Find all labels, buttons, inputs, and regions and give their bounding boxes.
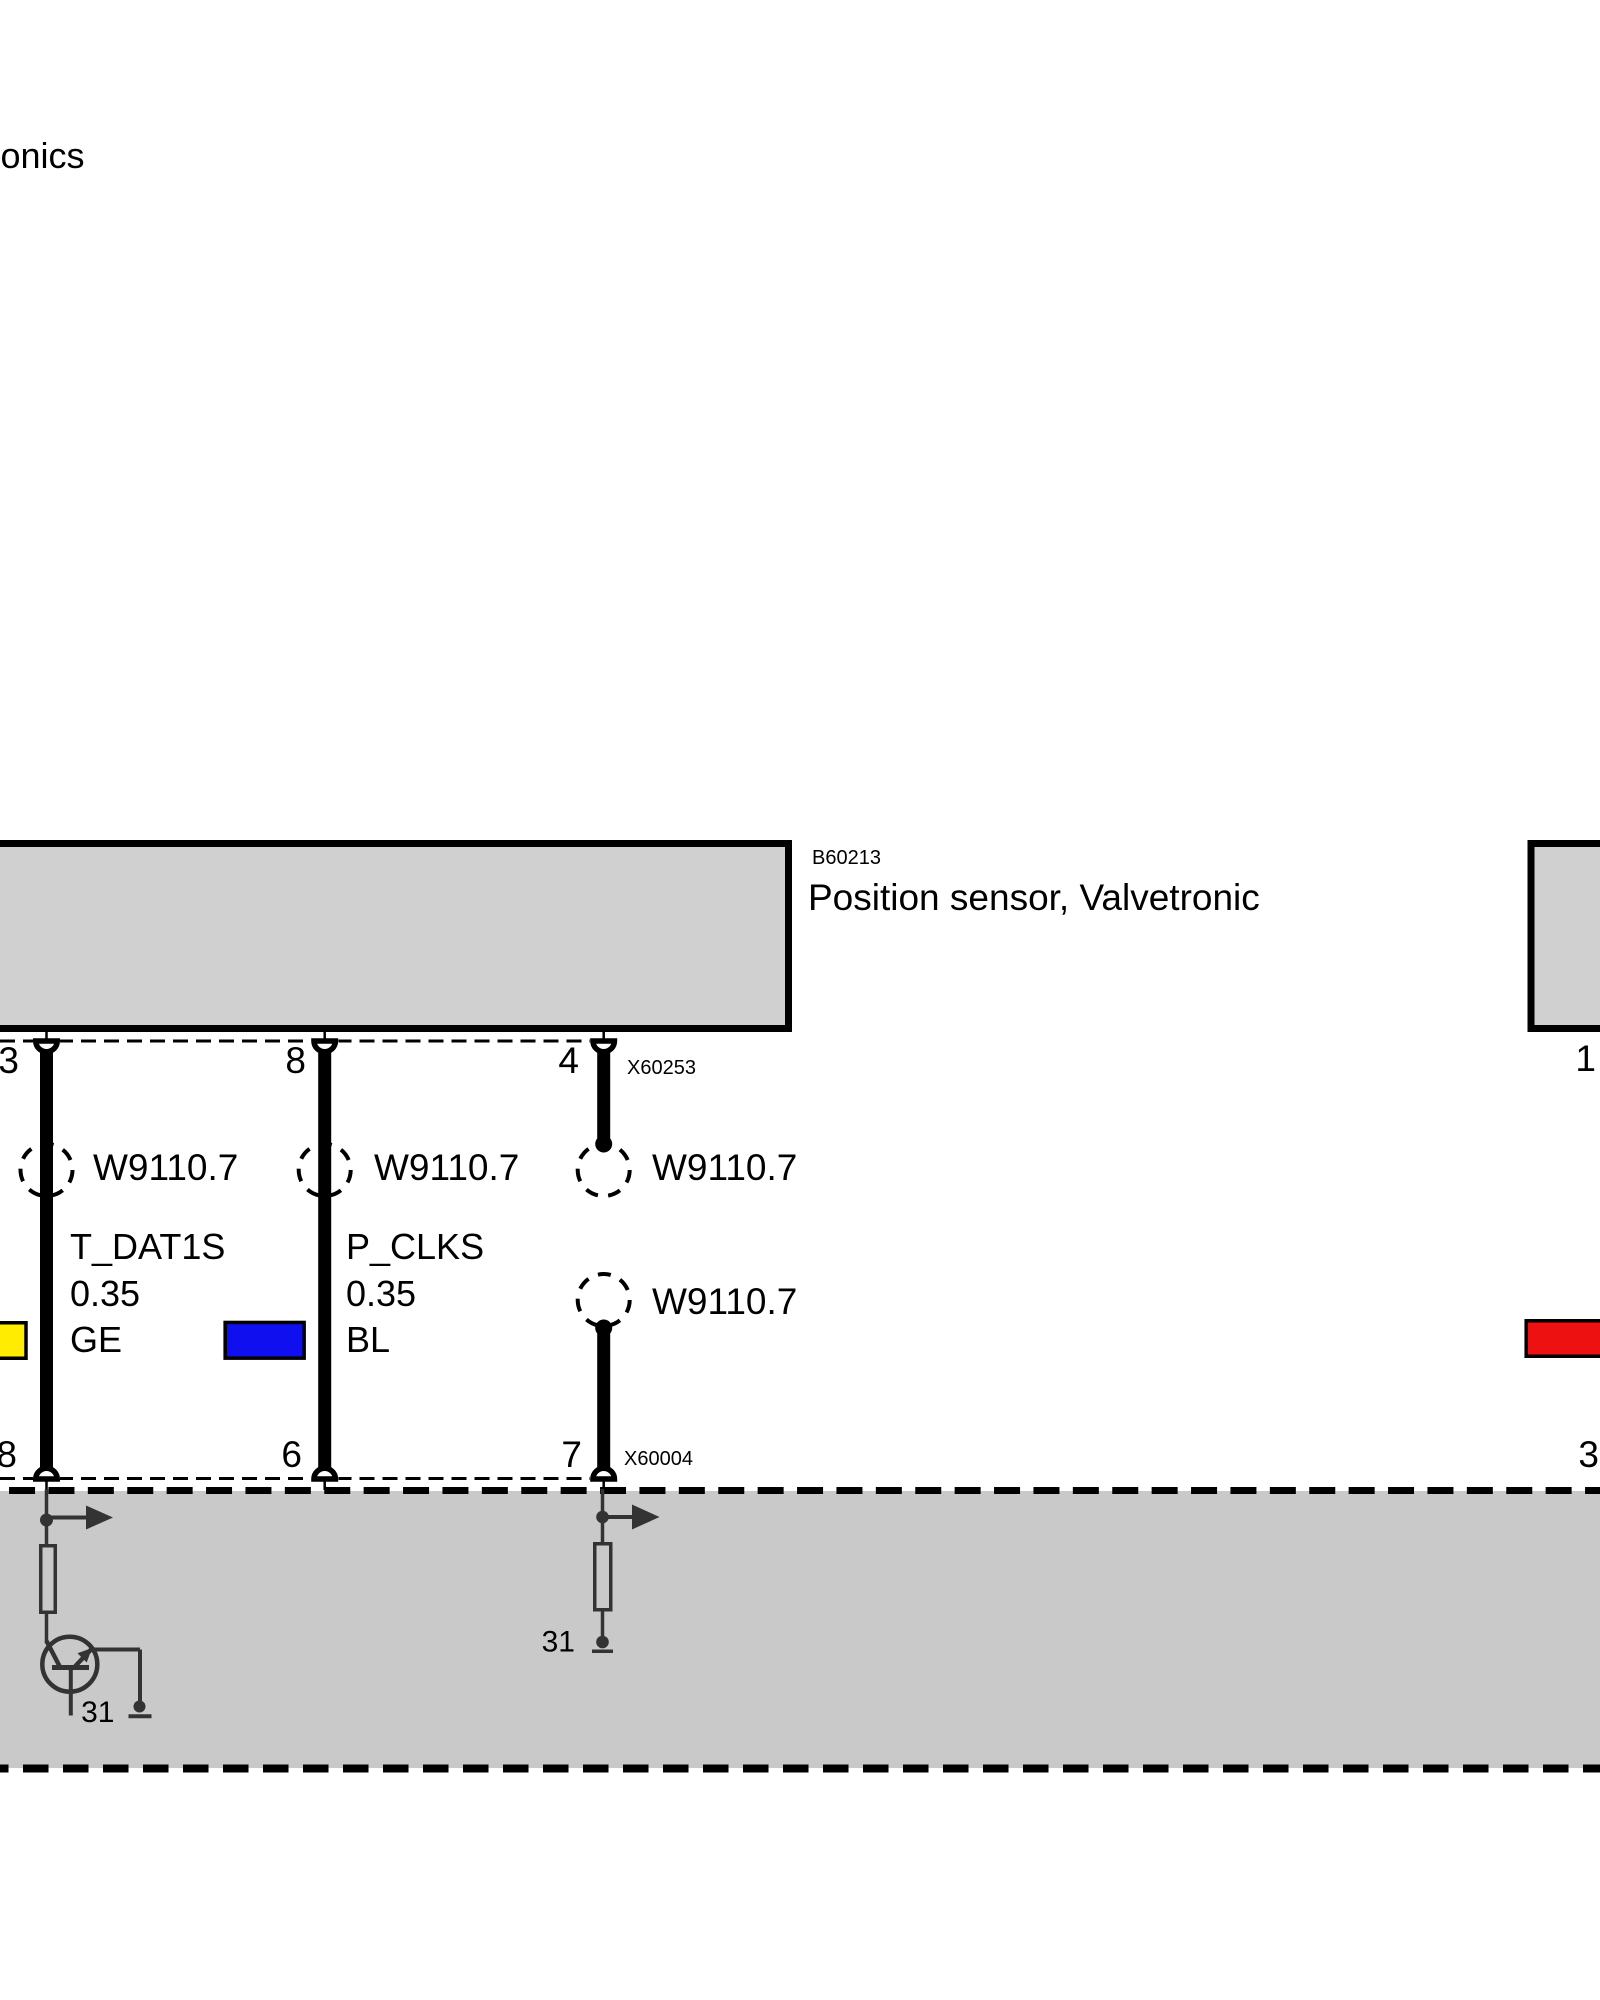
- svg-text:4: 4: [558, 1040, 579, 1081]
- svg-text:0.35: 0.35: [70, 1273, 140, 1314]
- svg-text:1: 1: [1575, 1038, 1596, 1079]
- svg-text:T_DAT1S: T_DAT1S: [70, 1226, 225, 1267]
- svg-text:W9110.7: W9110.7: [652, 1147, 797, 1188]
- svg-text:Position sensor, Valvetronic: Position sensor, Valvetronic: [808, 877, 1260, 918]
- svg-text:X60253: X60253: [627, 1057, 696, 1079]
- svg-text:3: 3: [0, 1040, 19, 1081]
- svg-text:GE: GE: [70, 1319, 122, 1360]
- svg-text:W9110.7: W9110.7: [374, 1147, 519, 1188]
- svg-text:W9110.7: W9110.7: [93, 1147, 238, 1188]
- svg-text:3: 3: [1578, 1434, 1599, 1475]
- svg-text:31: 31: [81, 1696, 114, 1729]
- svg-text:ronics: ronics: [0, 135, 85, 176]
- svg-text:8: 8: [0, 1434, 17, 1475]
- svg-text:7: 7: [561, 1434, 582, 1475]
- svg-text:B60213: B60213: [812, 847, 881, 869]
- svg-text:0.35: 0.35: [346, 1273, 416, 1314]
- svg-text:X60004: X60004: [624, 1448, 693, 1470]
- svg-text:BL: BL: [346, 1319, 390, 1360]
- svg-text:8: 8: [285, 1040, 306, 1081]
- svg-text:6: 6: [281, 1434, 302, 1475]
- svg-text:W9110.7: W9110.7: [652, 1281, 797, 1322]
- svg-text:P_CLKS: P_CLKS: [346, 1226, 484, 1267]
- svg-text:31: 31: [542, 1626, 575, 1659]
